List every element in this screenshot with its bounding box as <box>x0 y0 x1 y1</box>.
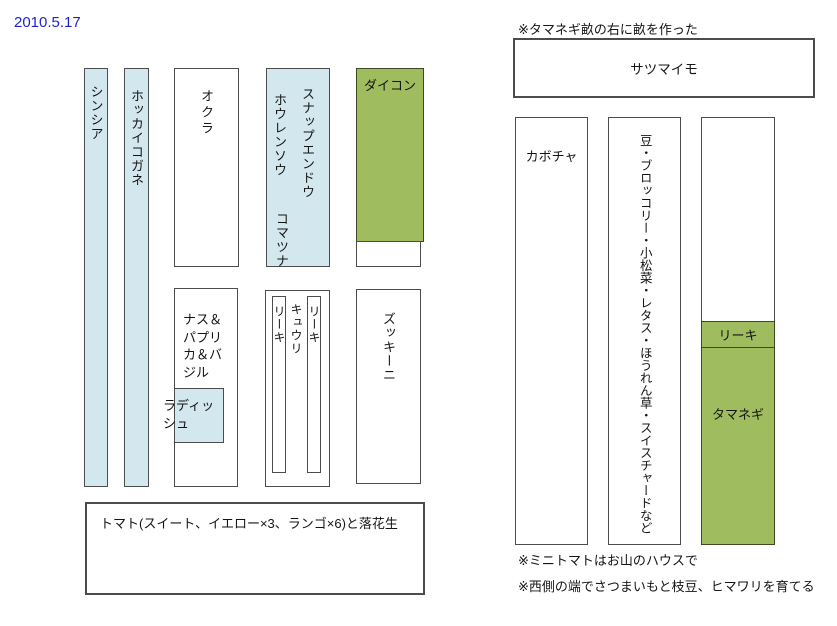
date-label: 2010.5.17 <box>14 14 81 31</box>
bed-mixed-greens: 豆・ブロッコリー・小松菜・レタス・ほうれん草・スイスチャードなど <box>608 117 681 545</box>
bed-okra-label: オクラ <box>200 89 213 137</box>
bed-east-empty-section <box>701 117 775 322</box>
bed-leek-cucumber: リーキ キュウリ リーキ <box>265 290 330 487</box>
bed-shinshia-label: シンシア <box>90 85 103 141</box>
bed-kabocha: カボチャ <box>515 117 588 545</box>
garden-plan-diagram: 2010.5.17 シンシア ホッカイコガネ オクラ スナップエンドウ ホウレン… <box>0 0 837 626</box>
bed-komatsuna-label: コマツナ <box>275 212 288 268</box>
bed-leek-right-label: リーキ <box>308 305 320 344</box>
bed-hokkaikogane: ホッカイコガネ <box>124 68 149 487</box>
bed-radish-label: ラディッシュ <box>163 397 225 432</box>
bed-daikon-empty-section <box>356 241 421 267</box>
bed-zucchini: ズッキーニ <box>356 289 421 484</box>
bed-leek-east: リーキ <box>701 321 775 348</box>
bed-tomato-peanut: トマト(スイート、イエロー×3、ランゴ×6)と落花生 <box>85 502 425 595</box>
bed-satsumaimo-label: サツマイモ <box>630 58 698 78</box>
bed-mixed-greens-label: 豆・ブロッコリー・小松菜・レタス・ほうれん草・スイスチャードなど <box>638 134 651 534</box>
bed-leek-left-label: リーキ <box>273 305 285 344</box>
bed-satsumaimo: サツマイモ <box>513 38 815 98</box>
bed-nasu-label: ナス＆パプリカ＆バジル <box>183 311 233 381</box>
bed-okra: オクラ <box>174 68 239 267</box>
bed-shinshia: シンシア <box>84 68 108 487</box>
bed-leek-east-label: リーキ <box>718 325 757 344</box>
bed-tamanegi: タマネギ <box>701 347 775 545</box>
bed-tomato-label: トマト(スイート、イエロー×3、ランゴ×6)と落花生 <box>100 515 398 533</box>
bed-tamanegi-label: タマネギ <box>702 406 774 424</box>
bed-hourensou-label: ホウレンソウ <box>273 93 286 177</box>
bed-snap-endou-label: スナップエンドウ <box>301 87 314 199</box>
note-onion-ridge: ※タマネギ畝の右に畝を作った <box>518 19 698 38</box>
bed-snap-endou-spinach-komatsuna: スナップエンドウ ホウレンソウ コマツナ <box>266 68 330 267</box>
bed-hokkaikogane-label: ホッカイコガネ <box>130 89 143 187</box>
bed-kabocha-label: カボチャ <box>516 148 587 166</box>
bed-zucchini-label: ズッキーニ <box>382 312 395 382</box>
note-west-edge: ※西側の端でさつまいもと枝豆、ヒマワリを育てる <box>518 576 815 595</box>
bed-leek-right-strip: リーキ <box>307 296 321 473</box>
bed-radish: ラディッシュ <box>174 388 224 443</box>
bed-daikon: ダイコン <box>356 68 424 242</box>
bed-daikon-label: ダイコン <box>364 77 416 95</box>
bed-cucumber-label: キュウリ <box>290 303 302 355</box>
note-mini-tomato: ※ミニトマトはお山のハウスで <box>518 550 698 569</box>
bed-leek-left-strip: リーキ <box>272 296 286 473</box>
